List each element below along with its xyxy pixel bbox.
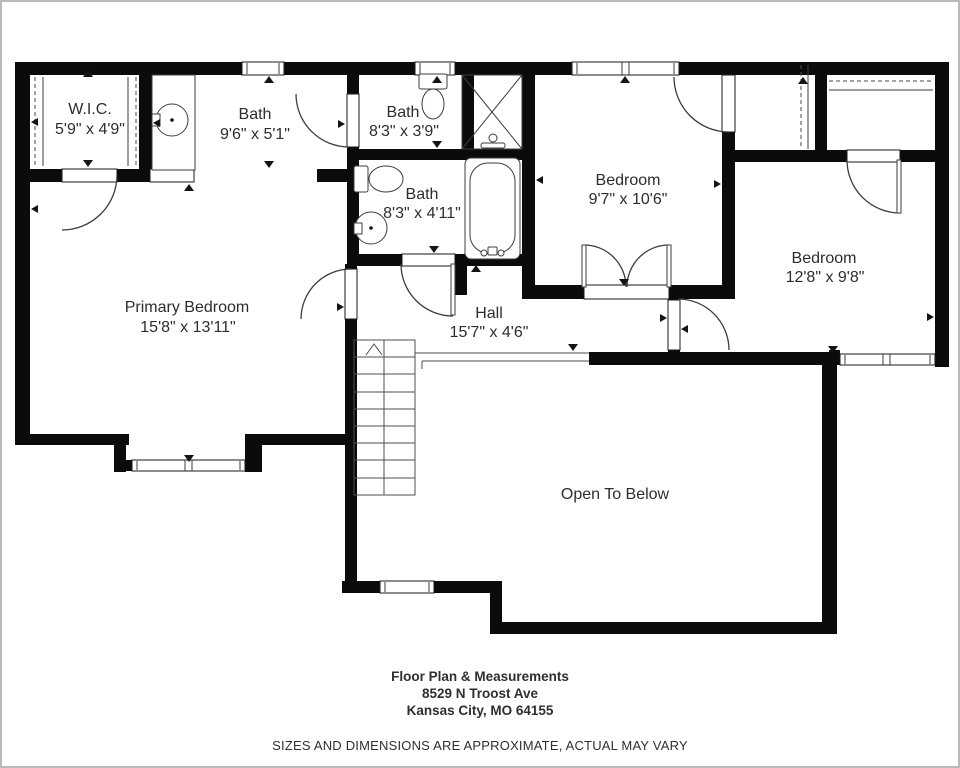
door-arc-bedroom2-entry (678, 299, 729, 350)
stairs-up-arrow-icon (366, 344, 382, 355)
label-primary-dims: 15'8" x 13'11" (140, 319, 235, 336)
bedroom1-closet-rod-icon (801, 65, 808, 149)
door-leaf-double-right (667, 245, 671, 287)
sill-bedroom1-closet-door (722, 75, 735, 132)
footer-address-line1: 8529 N Troost Ave (2, 685, 958, 702)
door-leaf-bedroom2-closet (897, 160, 901, 213)
wall-openbelow-south (490, 622, 837, 634)
floor-plan-page: W.I.C. 5'9" x 4'9" Bath 9'6" x 5'1" Bath… (0, 0, 960, 768)
door-arc-bath-upper (296, 94, 349, 147)
wall-top (15, 62, 949, 75)
sill-bath-hall-door (402, 254, 455, 266)
label-hall-name: Hall (475, 305, 503, 322)
bedroom2-closet-rod-icon (829, 81, 933, 90)
label-bath-hall-dims: 8'3" x 4'11" (383, 205, 461, 222)
window-bedroom2 (840, 354, 935, 365)
label-hall-dims: 15'7" x 4'6" (450, 324, 529, 341)
sill-bedroom1-double-door (584, 285, 669, 299)
footer-title: Floor Plan & Measurements (2, 668, 958, 685)
door-arc-double-left (584, 245, 626, 287)
pedestal-sink-icon (354, 212, 387, 244)
door-arc-primary (301, 269, 351, 319)
wall-primary-south-b (245, 434, 354, 445)
toilet-icon-hall (354, 166, 403, 192)
door-leaf-bath-hall (451, 264, 455, 315)
footer-address-line2: Kansas City, MO 64155 (2, 702, 958, 719)
wall-closet-divider (815, 62, 827, 152)
footer-disclaimer: SIZES AND DIMENSIONS ARE APPROXIMATE, AC… (2, 738, 958, 753)
sill-vanity-opening (150, 169, 194, 182)
floor-plan-drawing: W.I.C. 5'9" x 4'9" Bath 9'6" x 5'1" Bath… (2, 2, 960, 652)
wall-left (15, 62, 30, 445)
label-bedroom1-dims: 9'7" x 10'6" (589, 191, 668, 208)
door-arc-double-right (627, 245, 669, 287)
wall-openbelow-east (822, 352, 837, 634)
label-bedroom1-name: Bedroom (596, 172, 661, 189)
sill-wic-door (62, 169, 117, 182)
window-bedroom1 (572, 62, 679, 75)
label-bath-hall-name: Bath (406, 186, 439, 203)
door-arc-wic (62, 175, 117, 230)
label-wic-name: W.I.C. (68, 101, 112, 118)
label-bath-upper-name: Bath (387, 104, 420, 121)
label-bath-primary-dims: 9'6" x 5'1" (220, 126, 290, 143)
label-open-to-below: Open To Below (561, 486, 670, 503)
label-bath-upper-dims: 8'3" x 3'9" (369, 123, 439, 140)
door-arc-bedroom1-closet (674, 77, 729, 132)
wall-right (935, 62, 949, 367)
footer-address-block: Floor Plan & Measurements 8529 N Troost … (2, 668, 958, 719)
window-primary-bedroom (132, 460, 245, 471)
toilet-icon-upper (419, 74, 447, 119)
window-openbelow (380, 581, 434, 593)
wall-closet-south (727, 150, 935, 162)
wall-hall-south (589, 352, 837, 365)
sill-primary-door (345, 269, 357, 319)
door-arc-bath-hall (401, 264, 453, 316)
sill-bedroom2-entry-door (668, 300, 680, 350)
label-wic-dims: 5'9" x 4'9" (55, 121, 125, 138)
wall-primary-south-a (15, 434, 129, 445)
wall-wic-right (139, 62, 153, 170)
door-arc-bedroom2-closet (847, 160, 900, 213)
label-bath-primary-name: Bath (239, 106, 272, 123)
window-bath-primary (242, 62, 284, 75)
door-leaf-double-left (582, 245, 586, 287)
wall-pocket-stub (455, 254, 467, 295)
sill-bedroom2-closet-door (847, 150, 900, 162)
staircase (354, 340, 589, 495)
wall-bath-column-right (522, 62, 535, 299)
bathtub-icon (465, 158, 520, 259)
window-bath-upper (415, 62, 455, 75)
label-bedroom2-dims: 12'8" x 9'8" (786, 269, 865, 286)
label-primary-name: Primary Bedroom (125, 299, 249, 316)
label-bedroom2-name: Bedroom (792, 250, 857, 267)
sill-bath-upper-door (347, 94, 359, 147)
